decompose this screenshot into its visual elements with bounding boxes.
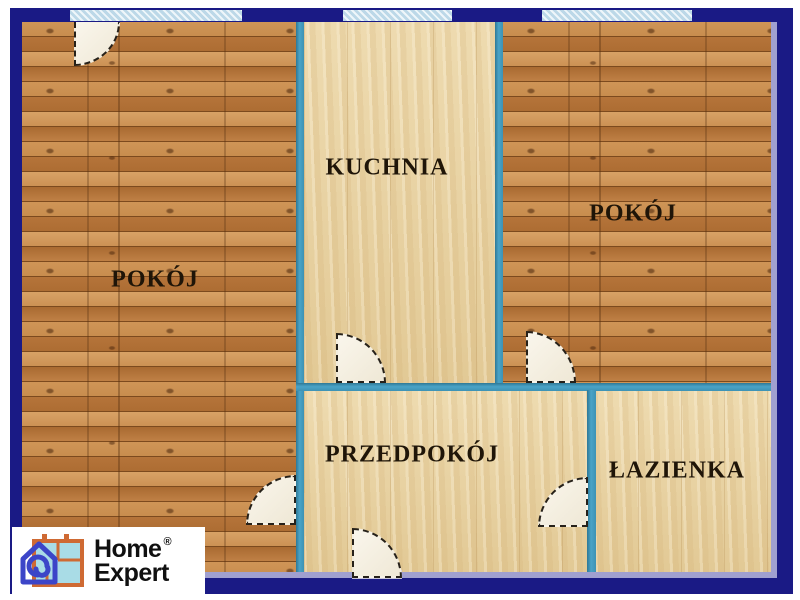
wall-przedpokoj-lazienka [587, 390, 596, 572]
room-label-pokoj-left: POKÓJ [111, 267, 199, 294]
room-label-kuchnia: KUCHNIA [325, 155, 448, 182]
room-kuchnia [304, 22, 495, 386]
window-kuchnia-icon [343, 10, 452, 21]
agency-logo: Home® Expert [12, 527, 205, 595]
wall-horizontal-center [296, 383, 771, 391]
room-label-przedpokoj: PRZEDPOKÓJ [325, 442, 499, 469]
window-pokoj-left-icon [70, 10, 242, 21]
agency-logo-text: Home® Expert [94, 537, 171, 585]
room-label-lazienka: ŁAZIENKA [609, 458, 745, 485]
wall-kuchnia-pokojright [495, 22, 503, 386]
wall-pokojleft-kuchnia [296, 22, 304, 572]
floorplan: POKÓJ KUCHNIA POKÓJ PRZEDPOKÓJ ŁAZIENKA … [0, 0, 800, 600]
home-expert-logo-icon [20, 533, 86, 589]
inner-edge-right [771, 22, 777, 578]
window-pokoj-right-icon [542, 10, 692, 21]
room-label-pokoj-right: POKÓJ [589, 201, 677, 228]
registered-mark: ® [163, 536, 171, 548]
room-przedpokoj [304, 390, 587, 572]
room-pokoj-left [22, 22, 296, 572]
logo-line2: Expert [94, 561, 171, 585]
